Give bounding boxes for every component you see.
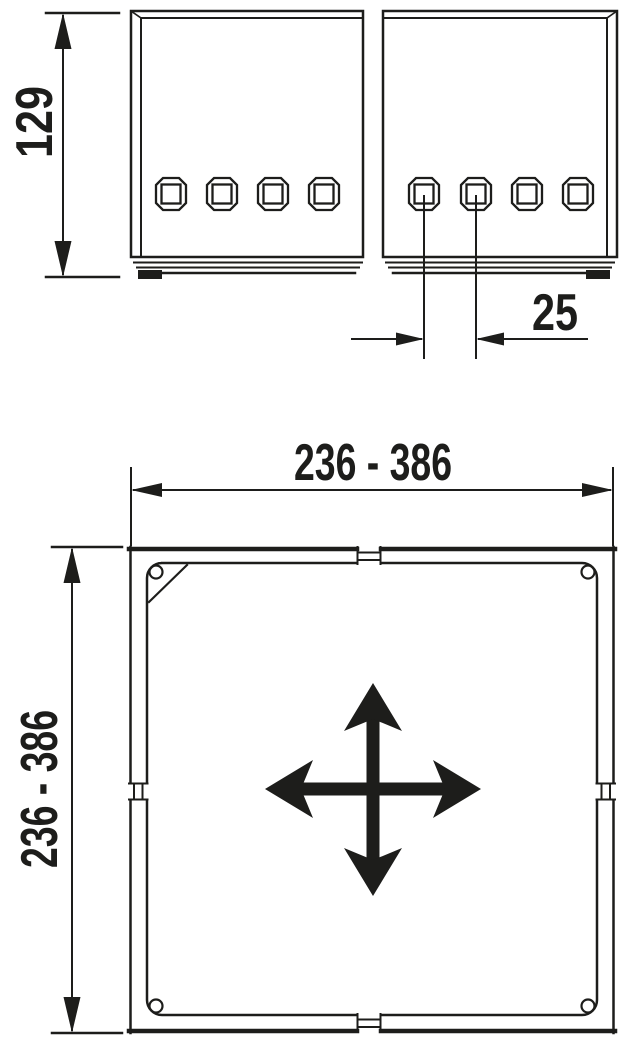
cabinet-outline — [131, 11, 363, 257]
foot — [586, 270, 610, 279]
corner-pin-icon — [150, 566, 163, 579]
arrow-down-icon — [64, 997, 81, 1033]
joint-top — [358, 547, 381, 564]
joint-bottom — [358, 1014, 381, 1031]
corner-pin-icon — [582, 566, 595, 579]
arrow-down-icon — [55, 241, 72, 277]
width-dimension-label: 236 - 386 — [294, 434, 452, 492]
right-cabinet — [383, 11, 617, 279]
left-cabinet — [131, 11, 363, 279]
foot — [138, 270, 162, 279]
corner-fitting-top-left — [149, 565, 187, 602]
arrow-up-icon — [55, 13, 72, 49]
arrow-up-icon — [64, 547, 81, 583]
hole-spacing-dimension-label: 25 — [532, 284, 578, 342]
front-view: 129 — [6, 11, 617, 358]
corner-pin-icon — [150, 1000, 163, 1013]
width-dimension: 236 - 386 — [131, 434, 613, 545]
mounting-hole — [309, 178, 339, 210]
technical-drawing-page: 129 — [0, 0, 631, 1048]
arrow-right-icon — [582, 483, 613, 497]
arrow-left-icon — [476, 333, 504, 346]
joint-right — [597, 784, 616, 800]
hole-spacing-dimension: 25 — [352, 196, 587, 358]
depth-dimension: 236 - 386 — [11, 547, 122, 1033]
height-dimension: 129 — [6, 13, 119, 277]
arrow-right-icon — [396, 333, 424, 346]
technical-drawing: 129 — [0, 0, 631, 1048]
corner-pin-icon — [582, 1000, 595, 1013]
mounting-hole — [563, 178, 593, 210]
joint-left — [129, 784, 148, 800]
arrow-left-icon — [131, 483, 162, 497]
adjustment-arrows-icon — [265, 683, 481, 896]
mounting-hole — [512, 178, 542, 210]
cabinet-outline — [383, 11, 617, 257]
mounting-hole — [258, 178, 288, 210]
mounting-hole — [156, 178, 186, 210]
mounting-hole — [207, 178, 237, 210]
height-dimension-label: 129 — [6, 86, 64, 158]
plan-view: 236 - 386 236 - 386 — [11, 434, 615, 1033]
depth-dimension-label: 236 - 386 — [11, 710, 69, 868]
